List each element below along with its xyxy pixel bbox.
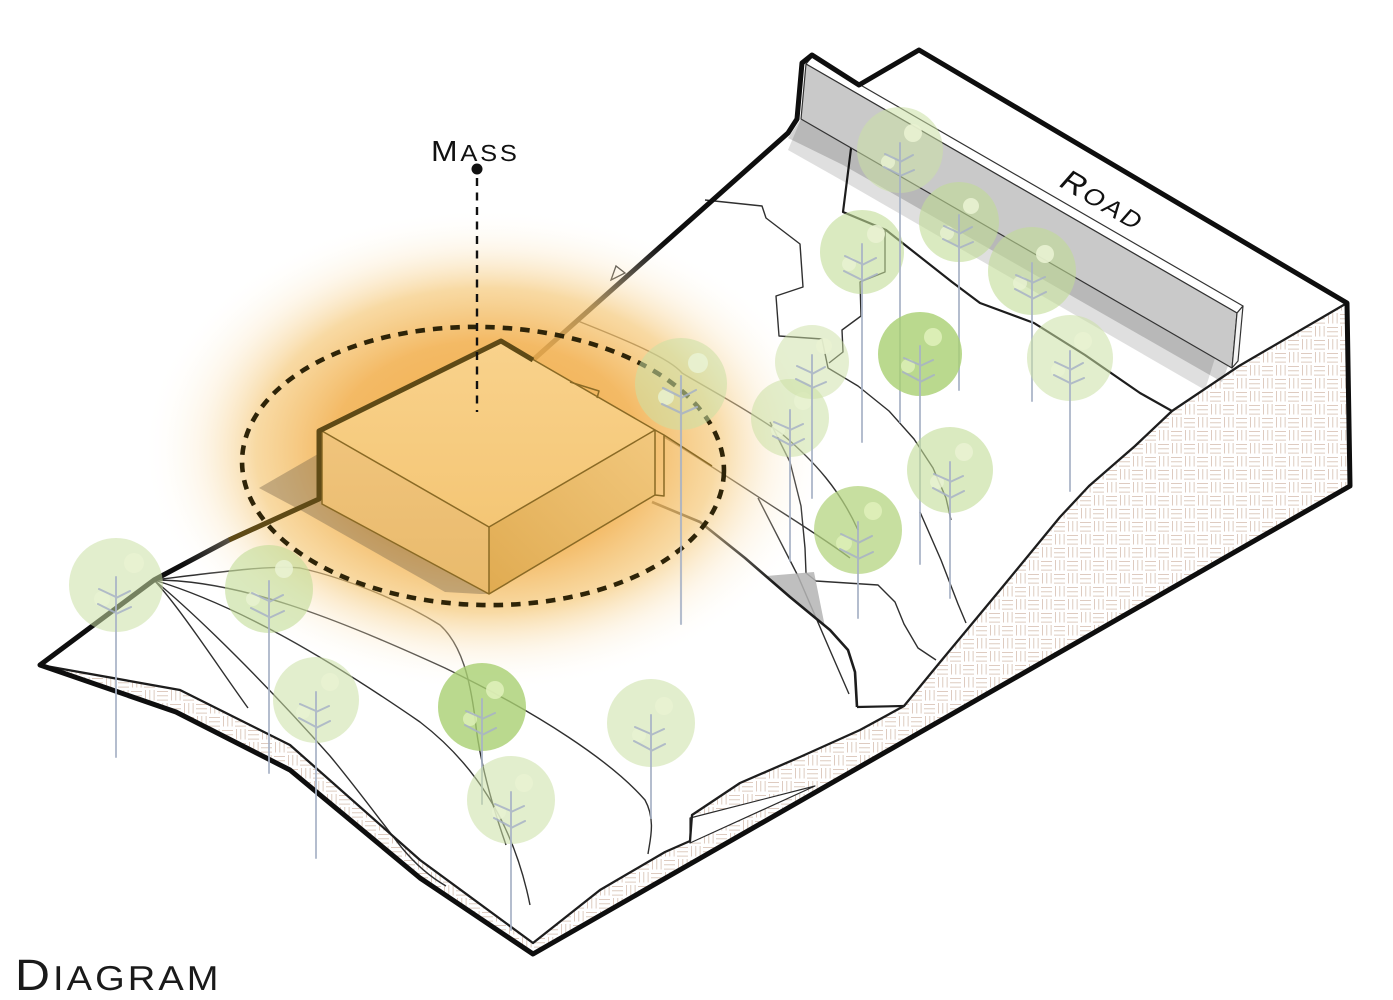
svg-text:MASS: MASS: [431, 136, 520, 168]
svg-text:DIAGRAM: DIAGRAM: [15, 951, 222, 1000]
